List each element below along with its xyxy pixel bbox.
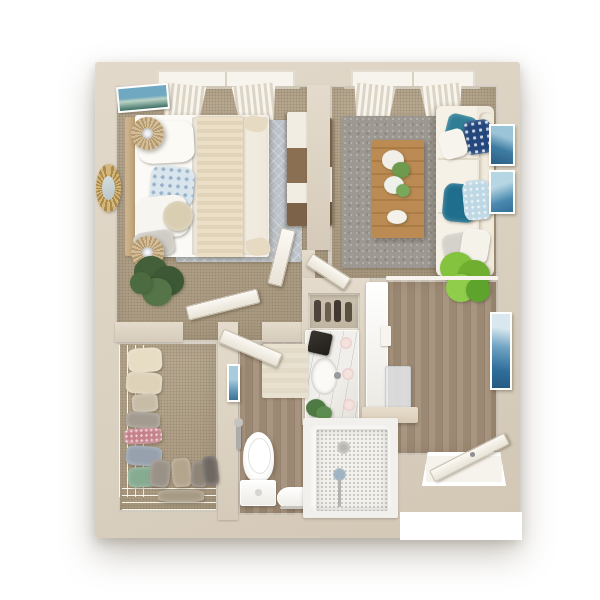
toilet-seat-line — [248, 438, 271, 474]
closet-boot-1 — [149, 459, 172, 488]
shelf-bottle-2 — [325, 302, 331, 322]
bed-knit-throw — [197, 116, 243, 257]
vanity-glass-2 — [342, 368, 354, 380]
floor-plan-render — [0, 0, 600, 600]
closet-clothes-gray — [126, 411, 161, 429]
living-plant-leaf-4 — [466, 278, 490, 302]
bedroom-wall-art — [116, 83, 170, 113]
sunburst-mirror-glass — [102, 176, 115, 200]
bedroom-window-mullion — [225, 72, 227, 86]
toilet-flush-button — [255, 489, 262, 496]
shelf-bottle-1 — [314, 300, 321, 322]
frosted-glass-panel — [385, 366, 411, 410]
light-switch — [381, 326, 391, 346]
living-art-bottom — [489, 170, 515, 214]
living-art-top — [489, 124, 515, 166]
closet-boot-2 — [171, 457, 192, 488]
closet-clothes-pink — [124, 427, 163, 445]
wall-bedroom-living-divider — [307, 85, 330, 250]
vanity-glass-3 — [343, 399, 355, 411]
shelf-bottle-3 — [334, 300, 341, 322]
living-entry-threshold-line — [386, 276, 498, 280]
shower-wall-fixture — [236, 424, 241, 450]
bathroom-mini-art — [227, 364, 240, 402]
closet-clothes-cream-1 — [127, 347, 162, 373]
wall-bedroom-closet-left — [115, 322, 183, 342]
nightstand-lamp-top-bulb — [142, 128, 153, 139]
bedroom-dresser — [287, 112, 308, 226]
sofa-pillow-lightblue-floral — [461, 179, 492, 221]
closet-clothes-cream-2 — [125, 371, 162, 395]
entry-door-handle — [470, 452, 475, 457]
living-window-mullion — [412, 72, 414, 86]
bedroom-plant-leaf-4 — [130, 272, 152, 294]
closet-clothes-tan — [131, 393, 158, 413]
coffee-maker — [307, 330, 333, 356]
vanity-faucet — [334, 372, 341, 379]
shower-drain — [337, 441, 350, 454]
entry-art — [490, 312, 512, 390]
handheld-shower-hose — [338, 479, 341, 507]
closet-shoes-small — [158, 490, 204, 502]
shower-wall-fixture-head — [234, 418, 243, 427]
coffee-table-greenery-2 — [396, 184, 410, 197]
shelf-bottle-4 — [345, 302, 352, 322]
footprint-notch — [400, 512, 522, 540]
shower-pan — [316, 429, 388, 511]
vanity-glass-1 — [340, 337, 352, 349]
wall-bedroom-hall-right — [262, 322, 307, 342]
coffee-table-dish — [387, 210, 407, 224]
